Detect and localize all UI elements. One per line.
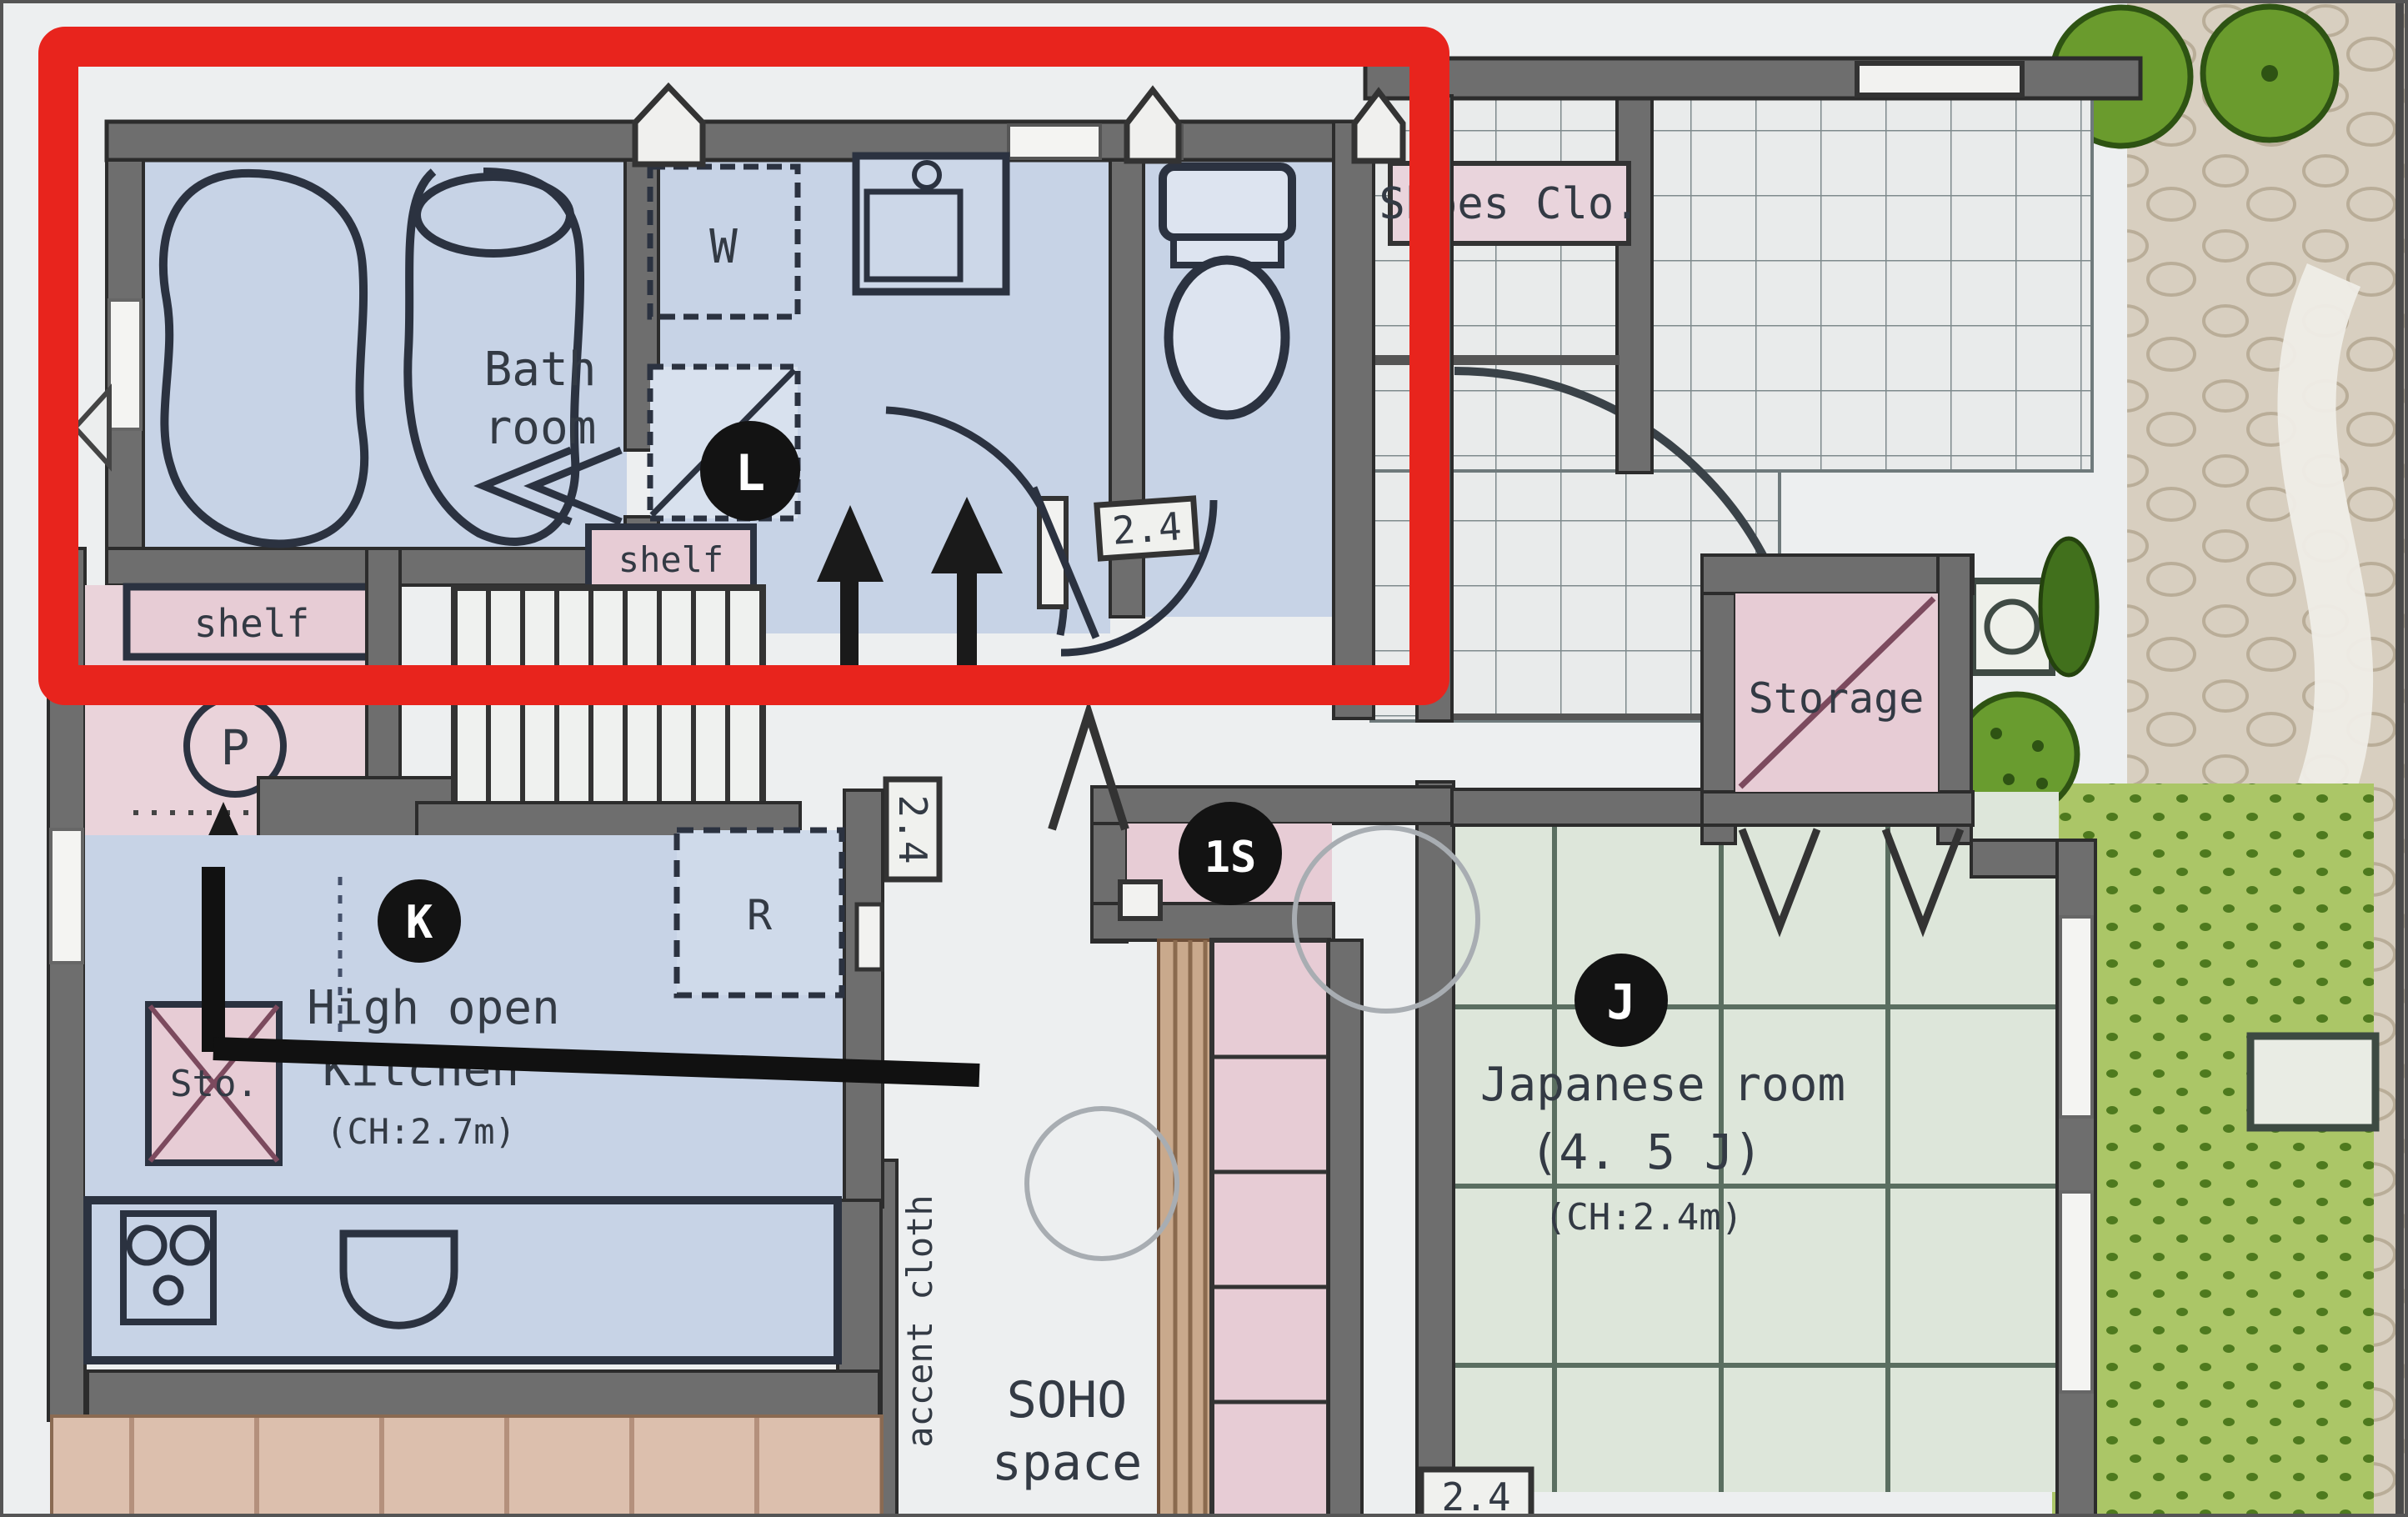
kitchen: K High open Kitchen (CH:2.7m) R Sto. (52, 790, 979, 1517)
stepping-stone (2250, 1036, 2375, 1128)
washbasin-icon (856, 156, 1006, 292)
stairs-dimension: 2.4 (886, 779, 939, 879)
kitchen-tag-label: K (406, 896, 433, 949)
washer-label: W (709, 220, 738, 274)
accent-cloth-label: accent cloth (899, 1194, 940, 1447)
japanese-room: J Japanese room (4. 5 J) (CH:2.4m) 2.4 (1417, 782, 2095, 1517)
window (2060, 1192, 2092, 1392)
counter-edge (202, 867, 225, 1052)
japanese-dim-label: 2.4 (1441, 1474, 1510, 1517)
bathroom-name-2: room (484, 401, 597, 455)
shelf-column (1212, 940, 1329, 1517)
front-door (1857, 63, 2022, 95)
wood-deck (52, 1416, 882, 1517)
pantry-shelf-label: shelf (194, 601, 309, 646)
floor-plan: J Japanese room (4. 5 J) (CH:2.4m) 2.4 S… (0, 0, 2408, 1517)
japanese-room-name: Japanese room (1480, 1058, 1845, 1112)
stairs-dim-label: 2.4 (890, 794, 935, 864)
toilet-dim-label: 2.4 (1111, 503, 1184, 553)
fridge-label: R (747, 891, 773, 939)
kitchen-ceiling: (CH:2.7m) (326, 1111, 516, 1152)
storage-room-name: Storage (1749, 674, 1925, 723)
window (2060, 917, 2092, 1117)
japanese-room-ceiling: (CH:2.4m) (1544, 1196, 1743, 1239)
window (109, 300, 141, 429)
kitchen-name-1: High open (307, 981, 559, 1035)
bush-icon (2040, 538, 2097, 675)
kitchen-storage-label: Sto. (170, 1063, 258, 1105)
pantry-tag-label: P (221, 719, 250, 776)
laundry-shelf-label: shelf (618, 539, 723, 580)
soho-label-2: space (992, 1434, 1143, 1492)
step-box (1120, 882, 1160, 919)
toilet-dimension: 2.4 (1097, 498, 1197, 558)
soho-label-1: SOHO (1007, 1371, 1128, 1429)
window (51, 829, 83, 963)
japanese-tag-label: J (1607, 974, 1636, 1030)
window (1009, 125, 1100, 158)
toilet-icon (1163, 167, 1292, 415)
landing-tag-label: 1S (1204, 833, 1257, 883)
lawn (2052, 784, 2374, 1517)
kitchen-counter (88, 1200, 838, 1360)
entrance-wall (1365, 58, 2140, 98)
wall-niche (857, 904, 882, 969)
japanese-room-size: (4. 5 J) (1529, 1124, 1762, 1180)
bathroom-name-1: Bath (484, 343, 597, 397)
laundry-tag-label: L (735, 444, 765, 503)
